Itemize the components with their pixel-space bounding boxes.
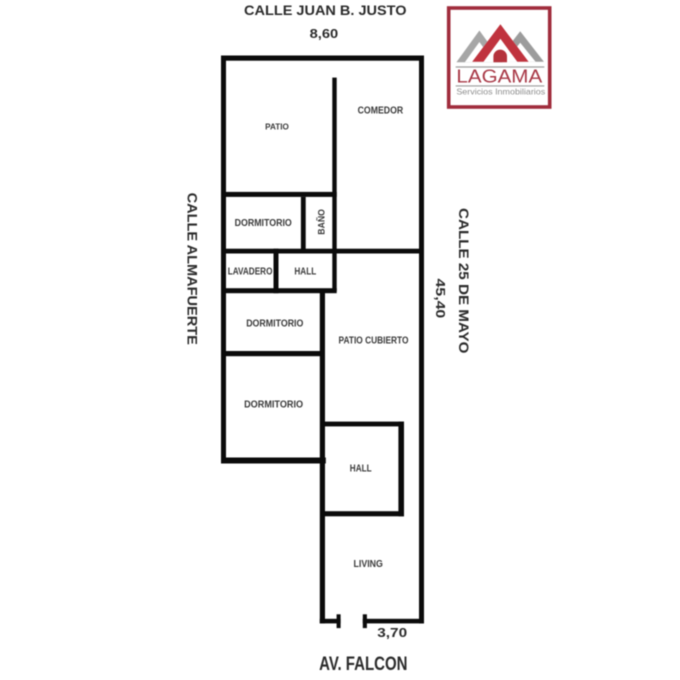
svg-text:PATIO CUBIERTO: PATIO CUBIERTO	[339, 335, 409, 346]
svg-text:45,40: 45,40	[433, 279, 448, 319]
svg-text:LAGAMA: LAGAMA	[456, 65, 543, 86]
svg-text:CALLE ALMAFUERTE: CALLE ALMAFUERTE	[184, 193, 200, 345]
svg-text:AV. FALCON: AV. FALCON	[319, 654, 407, 675]
svg-text:COMEDOR: COMEDOR	[358, 105, 404, 116]
svg-text:CALLE JUAN B. JUSTO: CALLE JUAN B. JUSTO	[244, 2, 407, 18]
svg-text:DORMITORIO: DORMITORIO	[246, 318, 303, 329]
svg-text:LAVADERO: LAVADERO	[228, 266, 273, 277]
svg-text:HALL: HALL	[294, 266, 316, 277]
svg-text:BAÑO: BAÑO	[316, 209, 327, 235]
svg-text:DORMITORIO: DORMITORIO	[235, 218, 292, 229]
svg-text:Servicios Inmobiliarios: Servicios Inmobiliarios	[456, 87, 545, 96]
svg-text:8,60: 8,60	[310, 26, 339, 41]
svg-text:HALL: HALL	[350, 464, 372, 475]
svg-text:3,70: 3,70	[377, 625, 407, 640]
svg-text:CALLE 25 DE MAYO: CALLE 25 DE MAYO	[456, 208, 472, 354]
svg-text:PATIO: PATIO	[265, 121, 289, 131]
svg-text:DORMITORIO: DORMITORIO	[244, 400, 303, 411]
svg-text:LIVING: LIVING	[354, 559, 384, 570]
